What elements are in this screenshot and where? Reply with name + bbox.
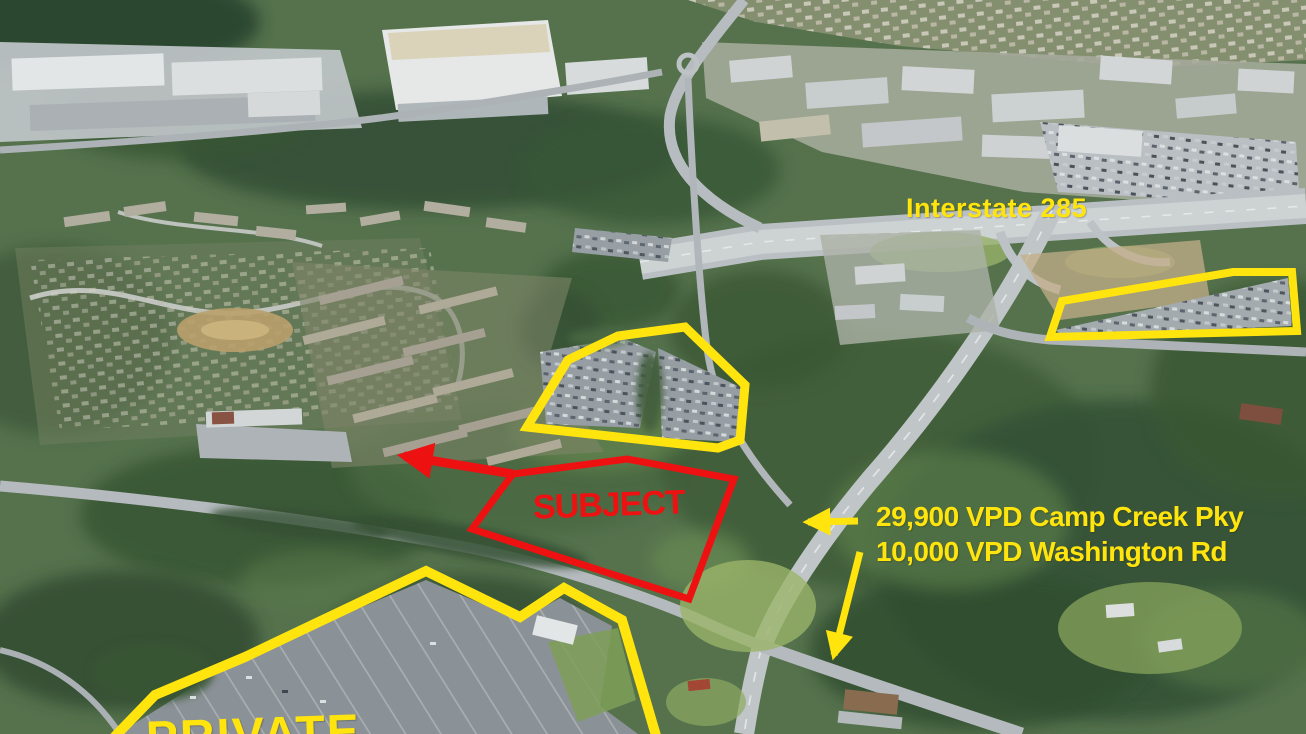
annotation-overlay	[0, 0, 1306, 734]
aerial-site-photo: Interstate 285 29,900 VPD Camp Creek Pky…	[0, 0, 1306, 734]
retail-parcel-outline-northeast	[1050, 272, 1297, 337]
subject-parcel-outline-arrow	[404, 456, 513, 474]
retail-parcel-outline-center	[527, 327, 745, 448]
private-parcel-outline-southwest	[96, 571, 662, 734]
traffic-arrow-camp-creek	[808, 521, 858, 522]
subject-parcel-outline	[472, 459, 734, 599]
traffic-arrow-washington	[834, 552, 860, 655]
